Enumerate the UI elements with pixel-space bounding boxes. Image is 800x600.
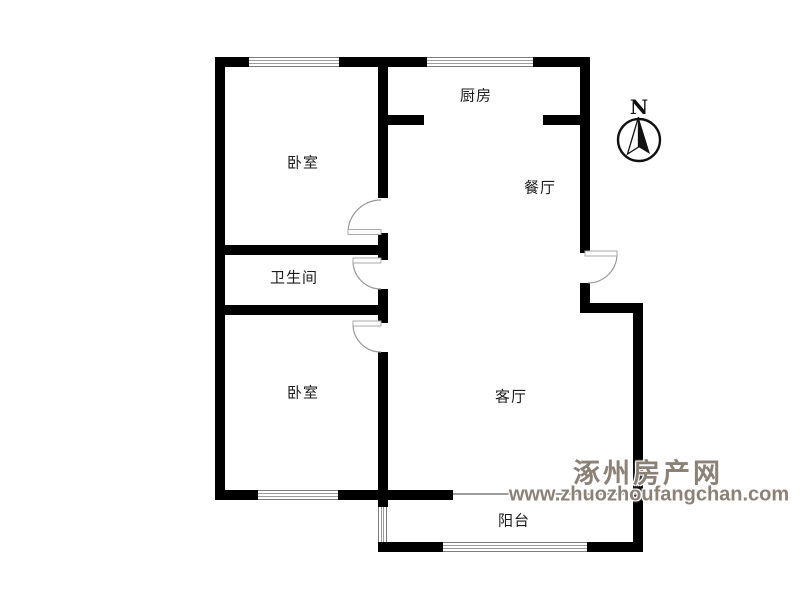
room-label-kitchen: 厨房 bbox=[460, 85, 492, 106]
north-compass-icon: N bbox=[609, 93, 671, 169]
room-label-bedroom-2: 卧室 bbox=[287, 382, 319, 403]
room-label-bedroom-1: 卧室 bbox=[287, 152, 319, 173]
floor-plan: 卧室 厨房 餐厅 卫生间 卧室 客厅 阳台 N 涿州房产网 www.zhuozh… bbox=[0, 0, 800, 600]
bathroom-door-icon bbox=[353, 258, 381, 289]
room-label-bathroom: 卫生间 bbox=[270, 267, 318, 288]
bedroom-1-door-icon bbox=[348, 200, 381, 235]
room-label-dining: 餐厅 bbox=[524, 177, 556, 198]
watermark-url: www.zhuozhoufangchan.com bbox=[509, 484, 789, 507]
door-swings-layer bbox=[0, 0, 800, 600]
bedroom-2-door-icon bbox=[353, 321, 381, 352]
compass-north-label: N bbox=[630, 95, 648, 119]
room-label-balcony: 阳台 bbox=[498, 510, 530, 531]
entry-door-icon bbox=[585, 251, 617, 283]
room-label-living: 客厅 bbox=[495, 386, 527, 407]
